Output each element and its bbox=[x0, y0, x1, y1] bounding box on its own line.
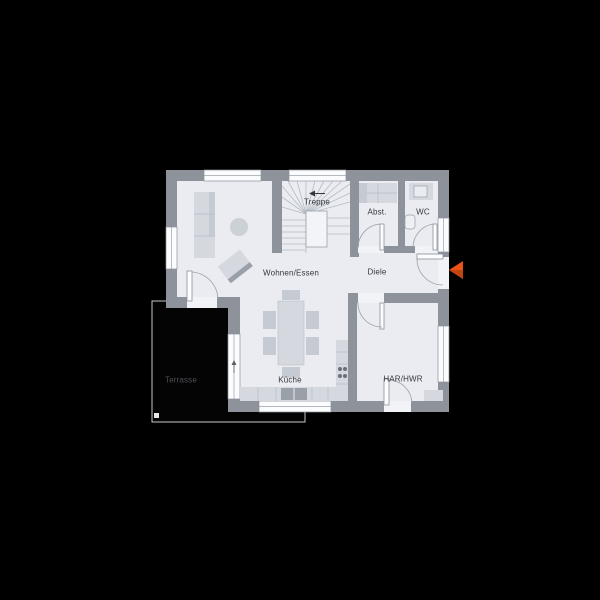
floor-plan-canvas: Treppe Abst. WC Wohnen/Essen Diele Küche… bbox=[0, 0, 600, 600]
window-har-right bbox=[438, 326, 449, 382]
window-wc-right bbox=[438, 218, 449, 252]
room-label-abst: Abst. bbox=[368, 208, 387, 217]
window-kitchen-bottom bbox=[259, 401, 331, 412]
stair-landing bbox=[306, 211, 327, 247]
room-label-wc: WC bbox=[416, 208, 430, 217]
wc-sink bbox=[409, 183, 433, 200]
kitchen-counter-right bbox=[336, 340, 348, 401]
window-top-stair bbox=[289, 170, 346, 181]
room-label-wohnen-essen: Wohnen/Essen bbox=[263, 269, 319, 278]
dining-chair bbox=[306, 337, 319, 355]
room-label-har-hwr: HAR/HWR bbox=[383, 375, 422, 384]
dining-chair bbox=[263, 337, 276, 355]
kitchen-counter-bottom bbox=[240, 387, 336, 401]
window-top-living bbox=[204, 170, 261, 181]
floor-plan-drawing bbox=[0, 0, 600, 600]
har-step bbox=[424, 390, 443, 401]
room-label-treppe: Treppe bbox=[304, 198, 330, 207]
window-left-living bbox=[166, 227, 177, 269]
dining-chair bbox=[306, 311, 319, 329]
terrace-post-marker bbox=[154, 413, 159, 418]
room-label-kueche: Küche bbox=[278, 376, 301, 385]
dining-chair bbox=[263, 311, 276, 329]
round-side-table bbox=[230, 218, 248, 236]
sofa bbox=[194, 192, 215, 258]
room-label-terrasse: Terrasse bbox=[165, 376, 197, 385]
abst-closet bbox=[359, 183, 397, 203]
entrance-arrow-icon bbox=[449, 261, 463, 279]
room-label-diele: Diele bbox=[368, 268, 387, 277]
dining-chair bbox=[282, 290, 300, 300]
wc-toilet bbox=[405, 215, 415, 229]
dining-table bbox=[278, 301, 304, 365]
